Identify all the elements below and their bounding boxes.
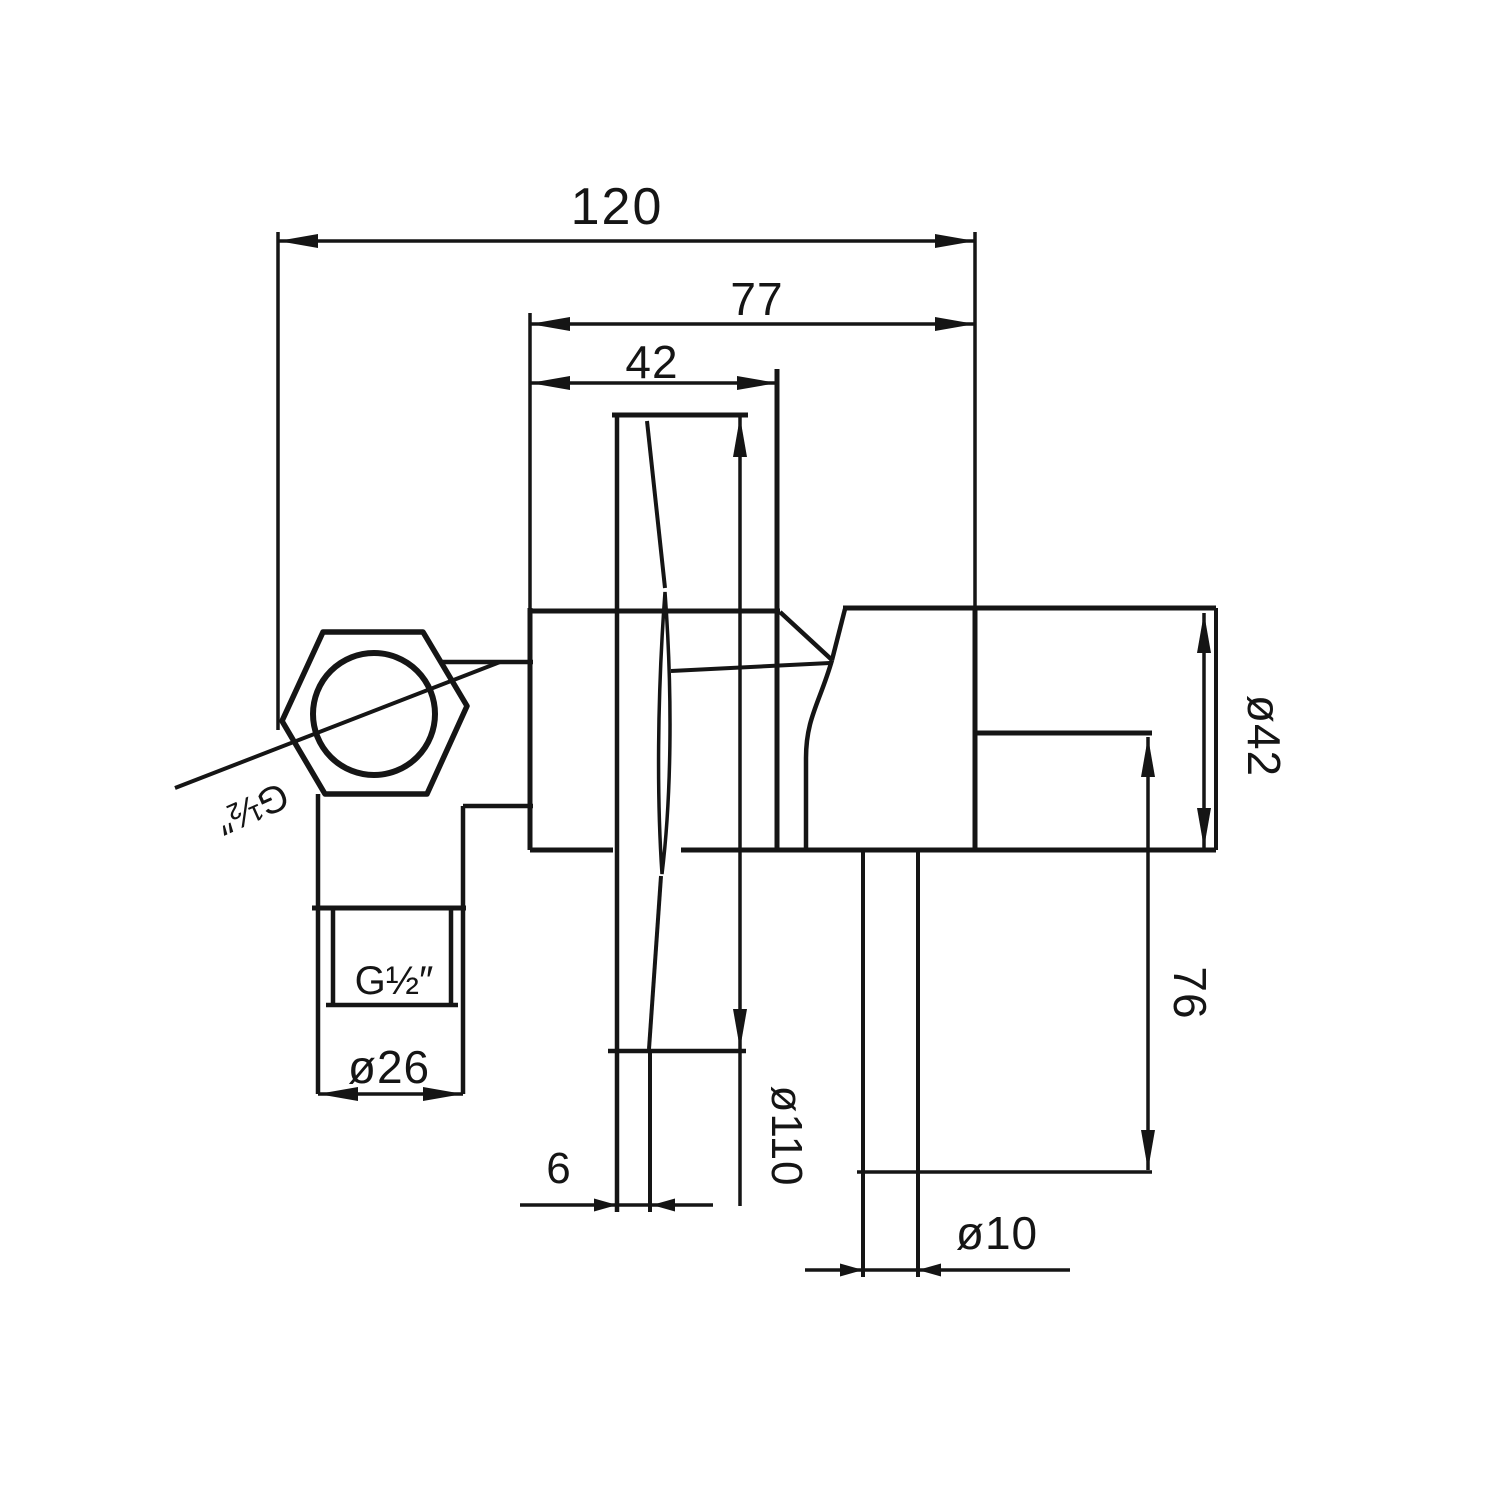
thread-leader-line — [175, 662, 500, 788]
spout-notch-up-slope — [832, 609, 845, 660]
dim-label-plate-diameter: ø110 — [762, 1085, 811, 1186]
valve-body — [530, 369, 1216, 1277]
mixer-valve-drawing: 120 77 42 ø42 76 ø110 ø26 6 ø10 G½″ G½″ — [0, 0, 1500, 1500]
plate-front-tilt-line — [647, 421, 665, 588]
arrow-outlet-diameter-left — [840, 1264, 863, 1277]
dim-label-spout-diameter: ø42 — [1238, 695, 1290, 777]
dim-label-outlet-diameter: ø10 — [956, 1207, 1038, 1259]
dim-label-body-depth: 77 — [730, 273, 783, 325]
handle-lever-profile — [659, 592, 670, 874]
dim-label-spout-to-outlet: 76 — [1164, 966, 1216, 1019]
arrow-outlet-diameter-right — [918, 1264, 941, 1277]
dim-label-overall-depth: 120 — [571, 178, 664, 236]
inlet-assembly — [175, 632, 533, 1094]
spout-notch-down-slope — [780, 612, 832, 660]
spout-shoulder-edge — [671, 663, 830, 671]
dim-label-plate-depth: 42 — [625, 336, 678, 388]
hex-nut-outline — [282, 632, 467, 794]
label-inlet-thread: G½″ — [355, 959, 434, 1003]
arrow-plate-thickness-right — [652, 1199, 675, 1212]
spout-root-curve — [806, 660, 832, 848]
label-supply-thread: G½″ — [209, 774, 294, 843]
dim-label-inlet-diameter: ø26 — [348, 1041, 430, 1093]
dimension-labels: 120 77 42 ø42 76 ø110 ø26 6 ø10 G½″ G½″ — [209, 178, 1290, 1259]
inlet-thread-circle — [313, 653, 435, 775]
arrow-plate-thickness-left — [594, 1199, 617, 1212]
escutcheon-plate — [608, 415, 748, 1212]
technical-drawing-page: 120 77 42 ø42 76 ø110 ø26 6 ø10 G½″ G½″ — [0, 0, 1500, 1500]
dim-label-plate-thickness: 6 — [546, 1144, 571, 1193]
plate-front-lower-line — [649, 876, 661, 1049]
